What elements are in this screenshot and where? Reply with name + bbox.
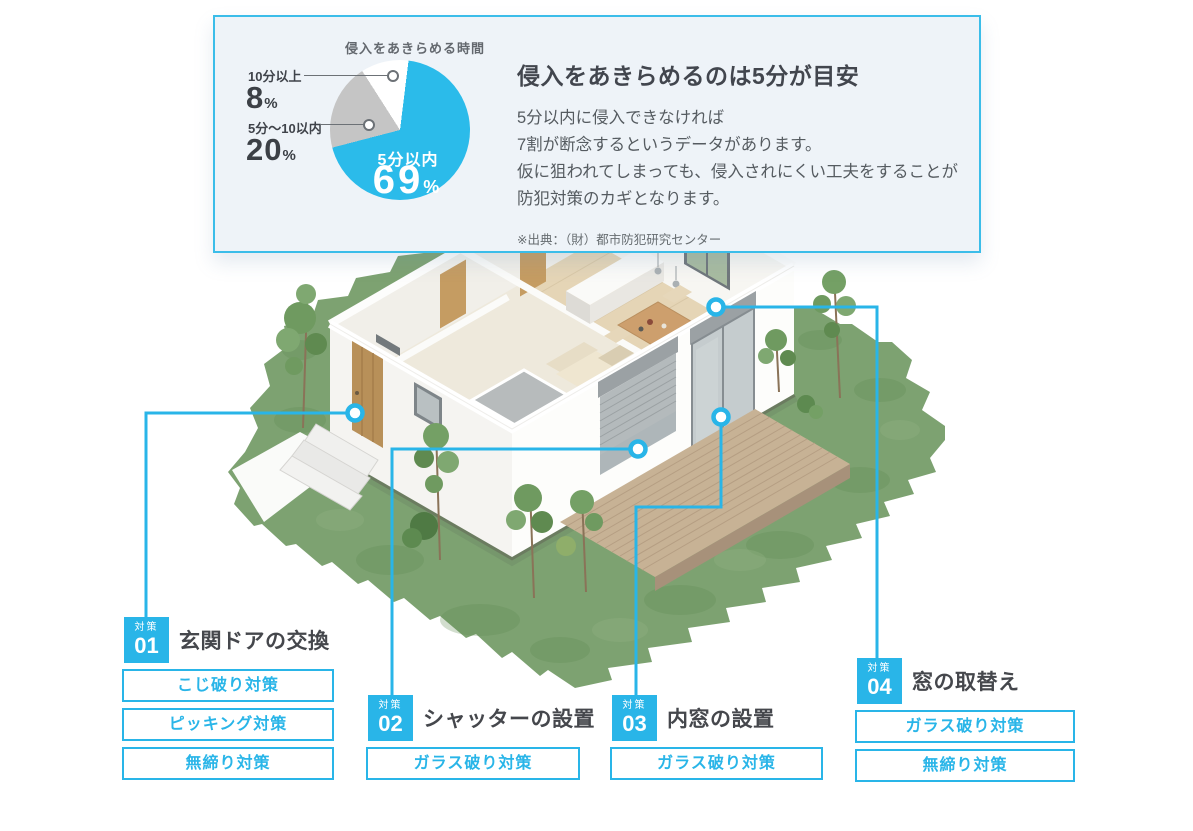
tree (758, 329, 796, 392)
measure-group-header: 対策 03 内窓の設置 (610, 695, 823, 741)
bush (556, 536, 576, 556)
dining-table (604, 285, 700, 356)
badge-tag: 対策 (623, 701, 647, 711)
info-card-heading: 侵入をあきらめるのは5分が目安 (517, 57, 967, 91)
measure-badge-03: 対策 03 (612, 695, 657, 741)
bathroom-floor (472, 370, 574, 429)
measure-group-01: 対策 01 玄関ドアの交換 こじ破り対策 ピッキング対策 無締り対策 (122, 617, 334, 780)
kitchen-island (566, 248, 680, 324)
measure-badge-04: 対策 04 (857, 658, 902, 704)
pie: 5分以内 69% (330, 60, 470, 200)
bush (797, 395, 823, 419)
measure-group-header: 対策 04 窓の取替え (855, 658, 1075, 704)
callout-line-04 (716, 307, 877, 660)
measure-badge-01: 対策 01 (124, 617, 169, 663)
wall-southeast (512, 266, 794, 557)
source-note: ※出典：（財）都市防犯研究センター (517, 229, 967, 248)
house-foundation-shadow (330, 394, 794, 557)
leader-line-10min (304, 75, 388, 76)
body-line: 仮に狙われてしまっても、侵入されにくい工夫をすることが (517, 159, 967, 186)
badge-number: 02 (378, 713, 402, 735)
pie-chart-title: 侵入をあきらめる時間 (315, 38, 515, 57)
body-line: 防犯対策のカギとなります。 (517, 186, 967, 213)
interior-door (440, 260, 466, 329)
entrance-steps (280, 424, 378, 510)
badge-tag: 対策 (868, 664, 892, 674)
badge-number: 01 (134, 635, 158, 657)
body-line: 7割が断念するというデータがあります。 (517, 132, 967, 159)
measure-item: 無締り対策 (122, 747, 334, 780)
leader-marker-5to10 (363, 119, 375, 131)
measure-title: 窓の取替え (912, 666, 1020, 696)
grass-lawn (228, 226, 945, 688)
tree (414, 423, 459, 560)
callout-marker-window (709, 300, 724, 315)
sofa (546, 342, 634, 388)
measure-group-header: 対策 01 玄関ドアの交換 (122, 617, 334, 663)
trees (276, 270, 856, 598)
pie-slice-value-main: 69% (342, 158, 470, 203)
leader-marker-10min (387, 70, 399, 82)
measure-item: ガラス破り対策 (366, 747, 580, 780)
bush (402, 512, 438, 548)
measure-item: ピッキング対策 (122, 708, 334, 741)
entrance-door (352, 334, 400, 448)
measure-item: ガラス破り対策 (610, 747, 823, 780)
measure-group-03: 対策 03 内窓の設置 ガラス破り対策 (610, 695, 823, 780)
info-card-text: 侵入をあきらめるのは5分が目安 5分以内に侵入できなければ 7割が断念するという… (517, 57, 967, 248)
badge-number: 04 (867, 676, 891, 698)
measure-group-04: 対策 04 窓の取替え ガラス破り対策 無締り対策 (855, 658, 1075, 782)
measure-item: こじ破り対策 (122, 669, 334, 702)
measure-title: 内窓の設置 (667, 703, 775, 733)
tree (570, 490, 603, 592)
entrance-walkway (232, 432, 348, 522)
badge-tag: 対策 (135, 623, 159, 633)
badge-number: 03 (622, 713, 646, 735)
measure-item: 無締り対策 (855, 749, 1075, 782)
wall-southwest (330, 324, 512, 557)
security-infographic: 侵入をあきらめる時間 5分以内 69% 10分以上 8% 5分〜10以内 20%… (0, 0, 1193, 831)
pie-slice-value-10min: 8% (246, 80, 278, 116)
badge-tag: 対策 (379, 701, 403, 711)
measure-title: シャッターの設置 (423, 703, 595, 733)
info-card: 侵入をあきらめる時間 5分以内 69% 10分以上 8% 5分〜10以内 20%… (213, 15, 981, 253)
shutter-window (598, 336, 678, 475)
callout-line-03 (636, 417, 721, 697)
measure-group-header: 対策 02 シャッターの設置 (366, 695, 580, 741)
tree (813, 270, 856, 398)
callout-line-02 (392, 449, 638, 697)
tree (276, 284, 327, 428)
callout-line-01 (146, 413, 355, 620)
measure-item: ガラス破り対策 (855, 710, 1075, 743)
sliding-glass-door (690, 291, 756, 464)
callout-marker-shutter (631, 442, 646, 457)
info-card-body: 5分以内に侵入できなければ 7割が断念するというデータがあります。 仮に狙われて… (517, 105, 967, 213)
measure-badge-02: 対策 02 (368, 695, 413, 741)
leader-line-5to10 (320, 124, 363, 125)
measure-group-02: 対策 02 シャッターの設置 ガラス破り対策 (366, 695, 580, 780)
callout-markers (348, 300, 729, 457)
callout-marker-entrance-door (348, 406, 363, 421)
pie-slice-value-5to10: 20% (246, 132, 296, 168)
callout-marker-inner-window (714, 410, 729, 425)
wood-deck (560, 409, 850, 591)
tree (506, 484, 553, 598)
side-window (414, 382, 442, 431)
body-line: 5分以内に侵入できなければ (517, 105, 967, 132)
measure-title: 玄関ドアの交換 (179, 625, 330, 655)
